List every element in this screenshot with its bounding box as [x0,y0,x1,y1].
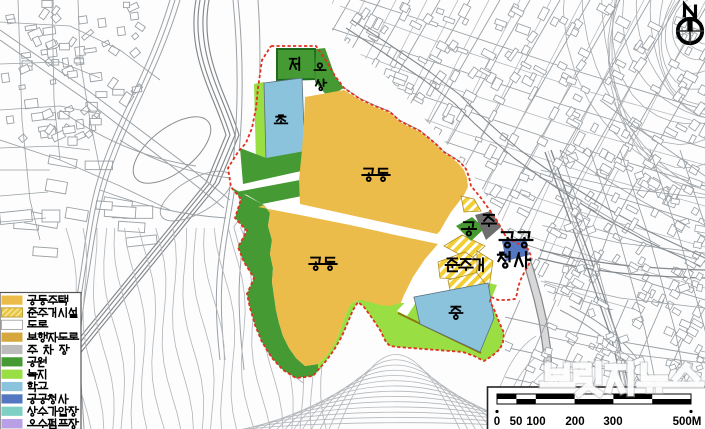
svg-text:100: 100 [526,416,545,428]
svg-text:200: 200 [565,416,584,428]
svg-text:0: 0 [494,416,500,428]
svg-text:300: 300 [603,416,622,428]
svg-text:50: 50 [510,416,523,428]
svg-text:500M: 500M [673,416,702,428]
